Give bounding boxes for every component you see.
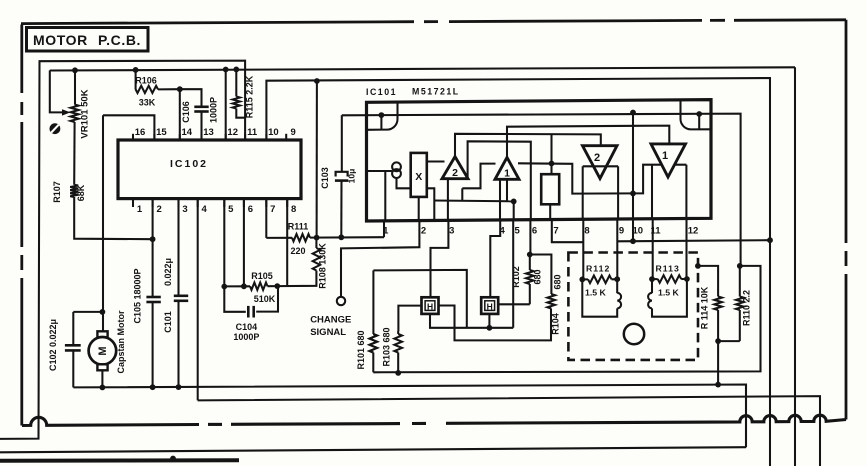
svg-text:10: 10 bbox=[633, 226, 644, 237]
svg-text:M51721L: M51721L bbox=[412, 87, 460, 97]
svg-text:R101 680: R101 680 bbox=[356, 330, 366, 369]
svg-text:C106: C106 bbox=[181, 101, 191, 123]
svg-text:8: 8 bbox=[584, 226, 589, 237]
svg-text:680: 680 bbox=[553, 274, 563, 289]
svg-text:H: H bbox=[487, 301, 493, 311]
svg-text:IC101: IC101 bbox=[366, 87, 397, 97]
svg-text:12: 12 bbox=[688, 226, 699, 237]
svg-text:3: 3 bbox=[449, 226, 454, 237]
svg-text:680: 680 bbox=[533, 269, 543, 284]
svg-text:510K: 510K bbox=[254, 294, 276, 304]
svg-text:MOTOR: MOTOR bbox=[33, 32, 88, 48]
svg-text:1000P: 1000P bbox=[233, 332, 259, 342]
svg-text:9: 9 bbox=[619, 226, 624, 237]
svg-text:R102: R102 bbox=[511, 266, 521, 288]
svg-text:7: 7 bbox=[553, 226, 558, 237]
svg-text:CHANGE: CHANGE bbox=[310, 315, 351, 326]
svg-text:1: 1 bbox=[137, 204, 143, 215]
svg-text:R111: R111 bbox=[288, 222, 309, 232]
svg-text:12: 12 bbox=[227, 127, 238, 138]
svg-text:R103 680: R103 680 bbox=[382, 327, 392, 366]
svg-text:VR101 50K: VR101 50K bbox=[80, 89, 91, 138]
svg-text:11: 11 bbox=[247, 127, 258, 138]
svg-text:R107: R107 bbox=[52, 181, 62, 203]
svg-text:Capstan Motor: Capstan Motor bbox=[116, 310, 126, 373]
svg-text:2: 2 bbox=[421, 226, 426, 237]
svg-text:0.022μ: 0.022μ bbox=[163, 258, 173, 286]
svg-text:5: 5 bbox=[228, 204, 234, 215]
svg-text:M: M bbox=[97, 346, 109, 355]
svg-text:14: 14 bbox=[182, 127, 193, 138]
svg-text:C103: C103 bbox=[320, 167, 330, 189]
svg-text:1: 1 bbox=[662, 150, 668, 162]
svg-text:13: 13 bbox=[203, 127, 214, 138]
svg-text:H: H bbox=[427, 301, 433, 311]
svg-text:R110 2.2: R110 2.2 bbox=[742, 290, 752, 326]
svg-text:4: 4 bbox=[202, 204, 208, 215]
svg-text:68K: 68K bbox=[76, 184, 86, 201]
svg-text:P.C.B.: P.C.B. bbox=[98, 32, 141, 48]
svg-text:1.5 K: 1.5 K bbox=[658, 288, 679, 298]
svg-text:1: 1 bbox=[504, 168, 510, 180]
svg-text:R113: R113 bbox=[656, 264, 680, 274]
svg-text:R106: R106 bbox=[135, 76, 157, 86]
svg-text:R105: R105 bbox=[251, 271, 273, 281]
svg-text:X: X bbox=[415, 171, 422, 183]
svg-text:10μ: 10μ bbox=[347, 169, 357, 184]
svg-text:220: 220 bbox=[290, 246, 305, 256]
svg-text:33K: 33K bbox=[139, 98, 156, 108]
svg-text:C102 0.022μ: C102 0.022μ bbox=[48, 319, 58, 371]
svg-text:C105 18000P: C105 18000P bbox=[133, 268, 143, 323]
svg-text:R112: R112 bbox=[586, 264, 610, 274]
svg-text:3: 3 bbox=[182, 204, 187, 215]
svg-text:6: 6 bbox=[532, 226, 537, 237]
svg-text:R108 130K: R108 130K bbox=[318, 243, 328, 289]
svg-text:10: 10 bbox=[268, 127, 279, 138]
svg-text:5: 5 bbox=[515, 226, 521, 237]
svg-text:8: 8 bbox=[291, 204, 296, 215]
svg-text:9: 9 bbox=[291, 127, 296, 138]
svg-text:C104: C104 bbox=[236, 322, 258, 332]
svg-text:C101: C101 bbox=[163, 311, 173, 333]
svg-text:2: 2 bbox=[156, 204, 161, 215]
svg-text:2: 2 bbox=[452, 167, 458, 179]
svg-text:16: 16 bbox=[135, 127, 146, 138]
svg-text:1.5 K: 1.5 K bbox=[585, 288, 606, 298]
svg-text:6: 6 bbox=[248, 204, 253, 215]
svg-text:15: 15 bbox=[156, 127, 167, 138]
svg-text:1000P: 1000P bbox=[209, 97, 219, 123]
svg-text:R 114 10K: R 114 10K bbox=[700, 286, 710, 329]
svg-text:R115 2.2K: R115 2.2K bbox=[245, 75, 255, 118]
svg-text:7: 7 bbox=[270, 204, 275, 215]
svg-text:R104: R104 bbox=[551, 313, 561, 335]
svg-text:SIGNAL: SIGNAL bbox=[310, 327, 346, 338]
svg-text:IC102: IC102 bbox=[170, 158, 208, 170]
svg-text:2: 2 bbox=[594, 152, 600, 164]
